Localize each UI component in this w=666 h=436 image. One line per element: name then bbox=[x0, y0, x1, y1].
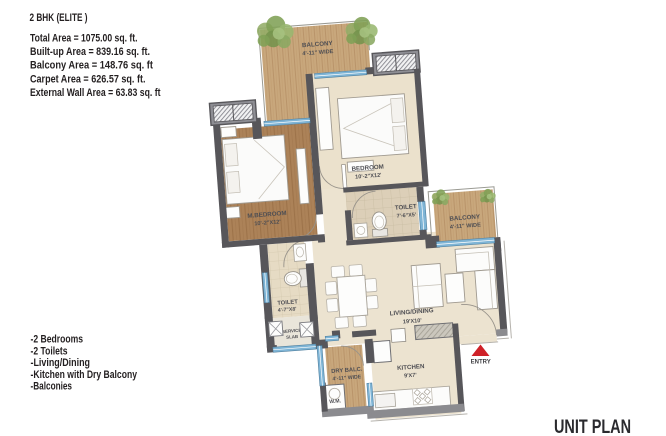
svg-text:9'X7': 9'X7' bbox=[404, 373, 418, 380]
svg-text:Total Area = 1075.00 sq. ft.: Total Area = 1075.00 sq. ft. bbox=[30, 33, 138, 45]
svg-text:2 BHK (ELITE ): 2 BHK (ELITE ) bbox=[30, 12, 88, 24]
svg-text:Built-up Area = 839.16 sq. ft.: Built-up Area = 839.16 sq. ft. bbox=[30, 46, 150, 58]
svg-text:-Living/Dining: -Living/Dining bbox=[31, 357, 91, 369]
svg-text:Balcony Area = 148.76 sq. ft: Balcony Area = 148.76 sq. ft bbox=[30, 60, 153, 72]
svg-text:SLAB: SLAB bbox=[286, 334, 298, 340]
svg-text:ENTRY: ENTRY bbox=[471, 360, 491, 366]
svg-text:-Balconies: -Balconies bbox=[31, 381, 73, 393]
svg-text:UNIT PLAN: UNIT PLAN bbox=[554, 416, 631, 436]
svg-text:-2 Bedrooms: -2 Bedrooms bbox=[31, 334, 84, 346]
svg-text:External Wall Area = 63.83 sq.: External Wall Area = 63.83 sq. ft bbox=[30, 87, 161, 99]
svg-text:W.M.: W.M. bbox=[329, 398, 342, 405]
svg-text:-Kitchen with Dry Balcony: -Kitchen with Dry Balcony bbox=[31, 369, 138, 381]
svg-text:-2 Toilets: -2 Toilets bbox=[31, 345, 68, 357]
svg-text:Carpet Area = 626.57 sq. ft.: Carpet Area = 626.57 sq. ft. bbox=[30, 73, 146, 85]
